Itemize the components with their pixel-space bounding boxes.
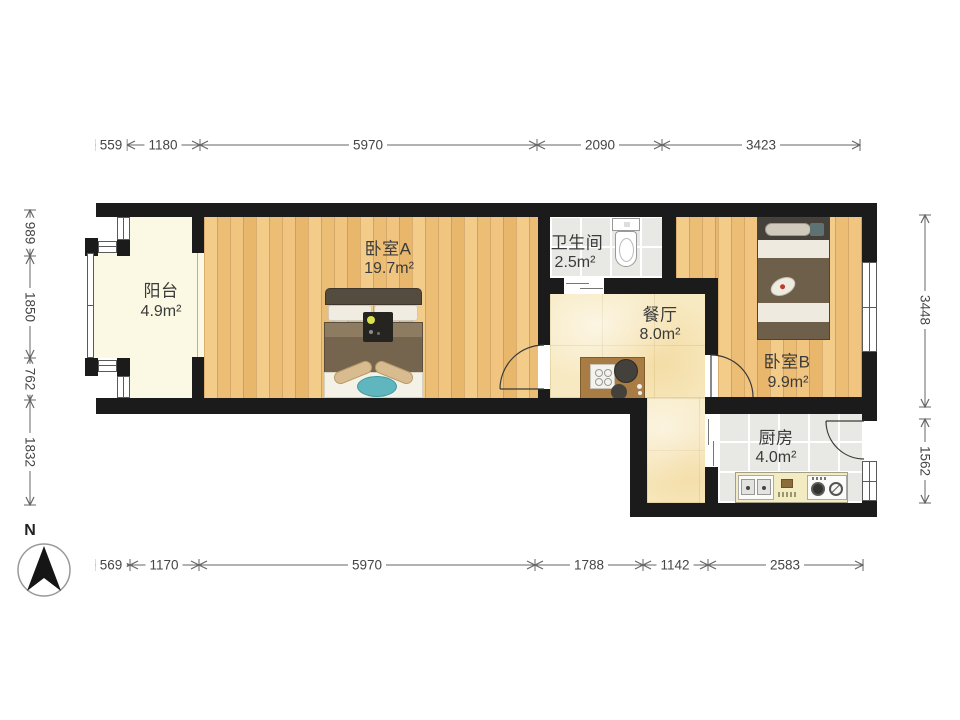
dim-bottom-5: 1142 xyxy=(656,558,693,573)
bay-block-inner-top xyxy=(117,238,130,256)
balcony-opening-strip xyxy=(192,253,204,357)
wall-bedroom-a-right-bot xyxy=(538,389,550,398)
dim-right-1: 3448 xyxy=(918,291,933,329)
balcony-area: 4.9m² xyxy=(141,303,182,321)
wall-kitchen-left-bot xyxy=(705,467,718,503)
bed-a xyxy=(322,288,425,398)
wall-corridor-left xyxy=(630,398,647,517)
dim-left-4: 1832 xyxy=(23,433,38,471)
kitchen-counter-box xyxy=(781,479,793,488)
dim-left-1: 989 xyxy=(23,218,38,249)
bathroom-door-panel-2 xyxy=(580,288,603,289)
bedroom-b-area: 9.9m² xyxy=(768,374,809,392)
kitchen-counter xyxy=(735,472,848,503)
stove-burner-left xyxy=(811,482,825,496)
kitchen-door-panel-1 xyxy=(708,419,709,445)
bed-b-pillow-teal xyxy=(810,223,824,236)
dim-bottom-3: 5970 xyxy=(348,558,386,573)
balcony-opening-line xyxy=(197,253,198,357)
dining-area: 8.0m² xyxy=(640,326,681,344)
dim-bottom-4: 1788 xyxy=(570,558,608,573)
bed-a-rug xyxy=(357,376,397,397)
dining-table xyxy=(580,357,645,400)
dim-bottom-1: 569 xyxy=(96,558,127,573)
wall-dining-bedroom-b xyxy=(705,294,718,355)
bed-a-headboard xyxy=(325,288,422,305)
bed-a-tray xyxy=(363,312,393,342)
dim-right-2: 1562 xyxy=(918,442,933,480)
bathroom-area: 2.5m² xyxy=(555,254,596,272)
wall-right-middle xyxy=(862,352,877,421)
dim-left-2: 1850 xyxy=(23,288,38,326)
wall-right-lower xyxy=(862,501,877,517)
dim-top-4: 2090 xyxy=(581,138,619,153)
dining-tray xyxy=(590,364,615,389)
wall-band-left xyxy=(550,278,564,294)
dim-top-5: 3423 xyxy=(742,138,780,153)
wall-balcony-divider-top xyxy=(192,217,204,253)
wall-bedroom-a-right-top xyxy=(538,217,550,345)
bed-b-pillow xyxy=(765,223,811,236)
toilet-bowl xyxy=(615,231,637,267)
dim-top-3: 5970 xyxy=(349,138,387,153)
wall-band-right xyxy=(604,278,718,294)
window-bay-top xyxy=(98,241,117,253)
dim-left-3: 762 xyxy=(23,364,38,395)
bedroom-b-floor-notch xyxy=(676,217,718,278)
bed-b xyxy=(757,217,830,340)
bay-block-inner-bot xyxy=(117,358,130,376)
dim-bottom-2: 1170 xyxy=(145,558,182,573)
toilet-tank xyxy=(612,218,640,231)
dimension-lines-bottom xyxy=(96,559,863,571)
floor-plan-canvas: 阳台 4.9m² 卧室A 19.7m² 卫生间 2.5m² 餐厅 8.0m² 卧… xyxy=(0,0,960,720)
balcony-label: 阳台 xyxy=(144,277,179,302)
toilet xyxy=(612,218,640,268)
bedroom-b-label: 卧室B xyxy=(764,348,811,373)
dining-label: 餐厅 xyxy=(643,301,678,326)
kitchen-label: 厨房 xyxy=(759,424,794,449)
kitchen-door-panel-2 xyxy=(713,441,714,466)
kitchen-stove xyxy=(807,475,847,500)
wall-balcony-divider-bot xyxy=(192,357,204,398)
bedroom-a-area: 19.7m² xyxy=(364,260,414,278)
dim-top-1: 559 xyxy=(96,138,127,153)
wall-bathroom-right xyxy=(662,217,676,280)
bay-block-outer-bot xyxy=(85,358,98,376)
wall-bedroom-b-bottom xyxy=(705,397,877,414)
wall-bottom-main xyxy=(96,398,647,414)
compass-north-label: N xyxy=(24,522,36,540)
dim-top-2: 1180 xyxy=(144,138,181,153)
wall-right-upper xyxy=(862,203,877,262)
stove-burner-right xyxy=(829,482,843,496)
dim-bottom-6: 2583 xyxy=(766,558,804,573)
kitchen-sink xyxy=(738,475,774,500)
dining-corridor-floor xyxy=(647,398,705,503)
dining-chair-large xyxy=(614,359,638,383)
balcony-bay-floor xyxy=(94,253,130,358)
bedroom-a-label: 卧室A xyxy=(365,235,412,260)
window-bay-bottom xyxy=(98,360,117,372)
kitchen-area: 4.0m² xyxy=(756,449,797,467)
compass-icon xyxy=(18,544,70,596)
bathroom-label: 卫生间 xyxy=(551,229,604,254)
wall-top xyxy=(96,203,877,217)
bathroom-door-panel-1 xyxy=(566,283,589,284)
wall-bottom-right xyxy=(630,503,877,517)
